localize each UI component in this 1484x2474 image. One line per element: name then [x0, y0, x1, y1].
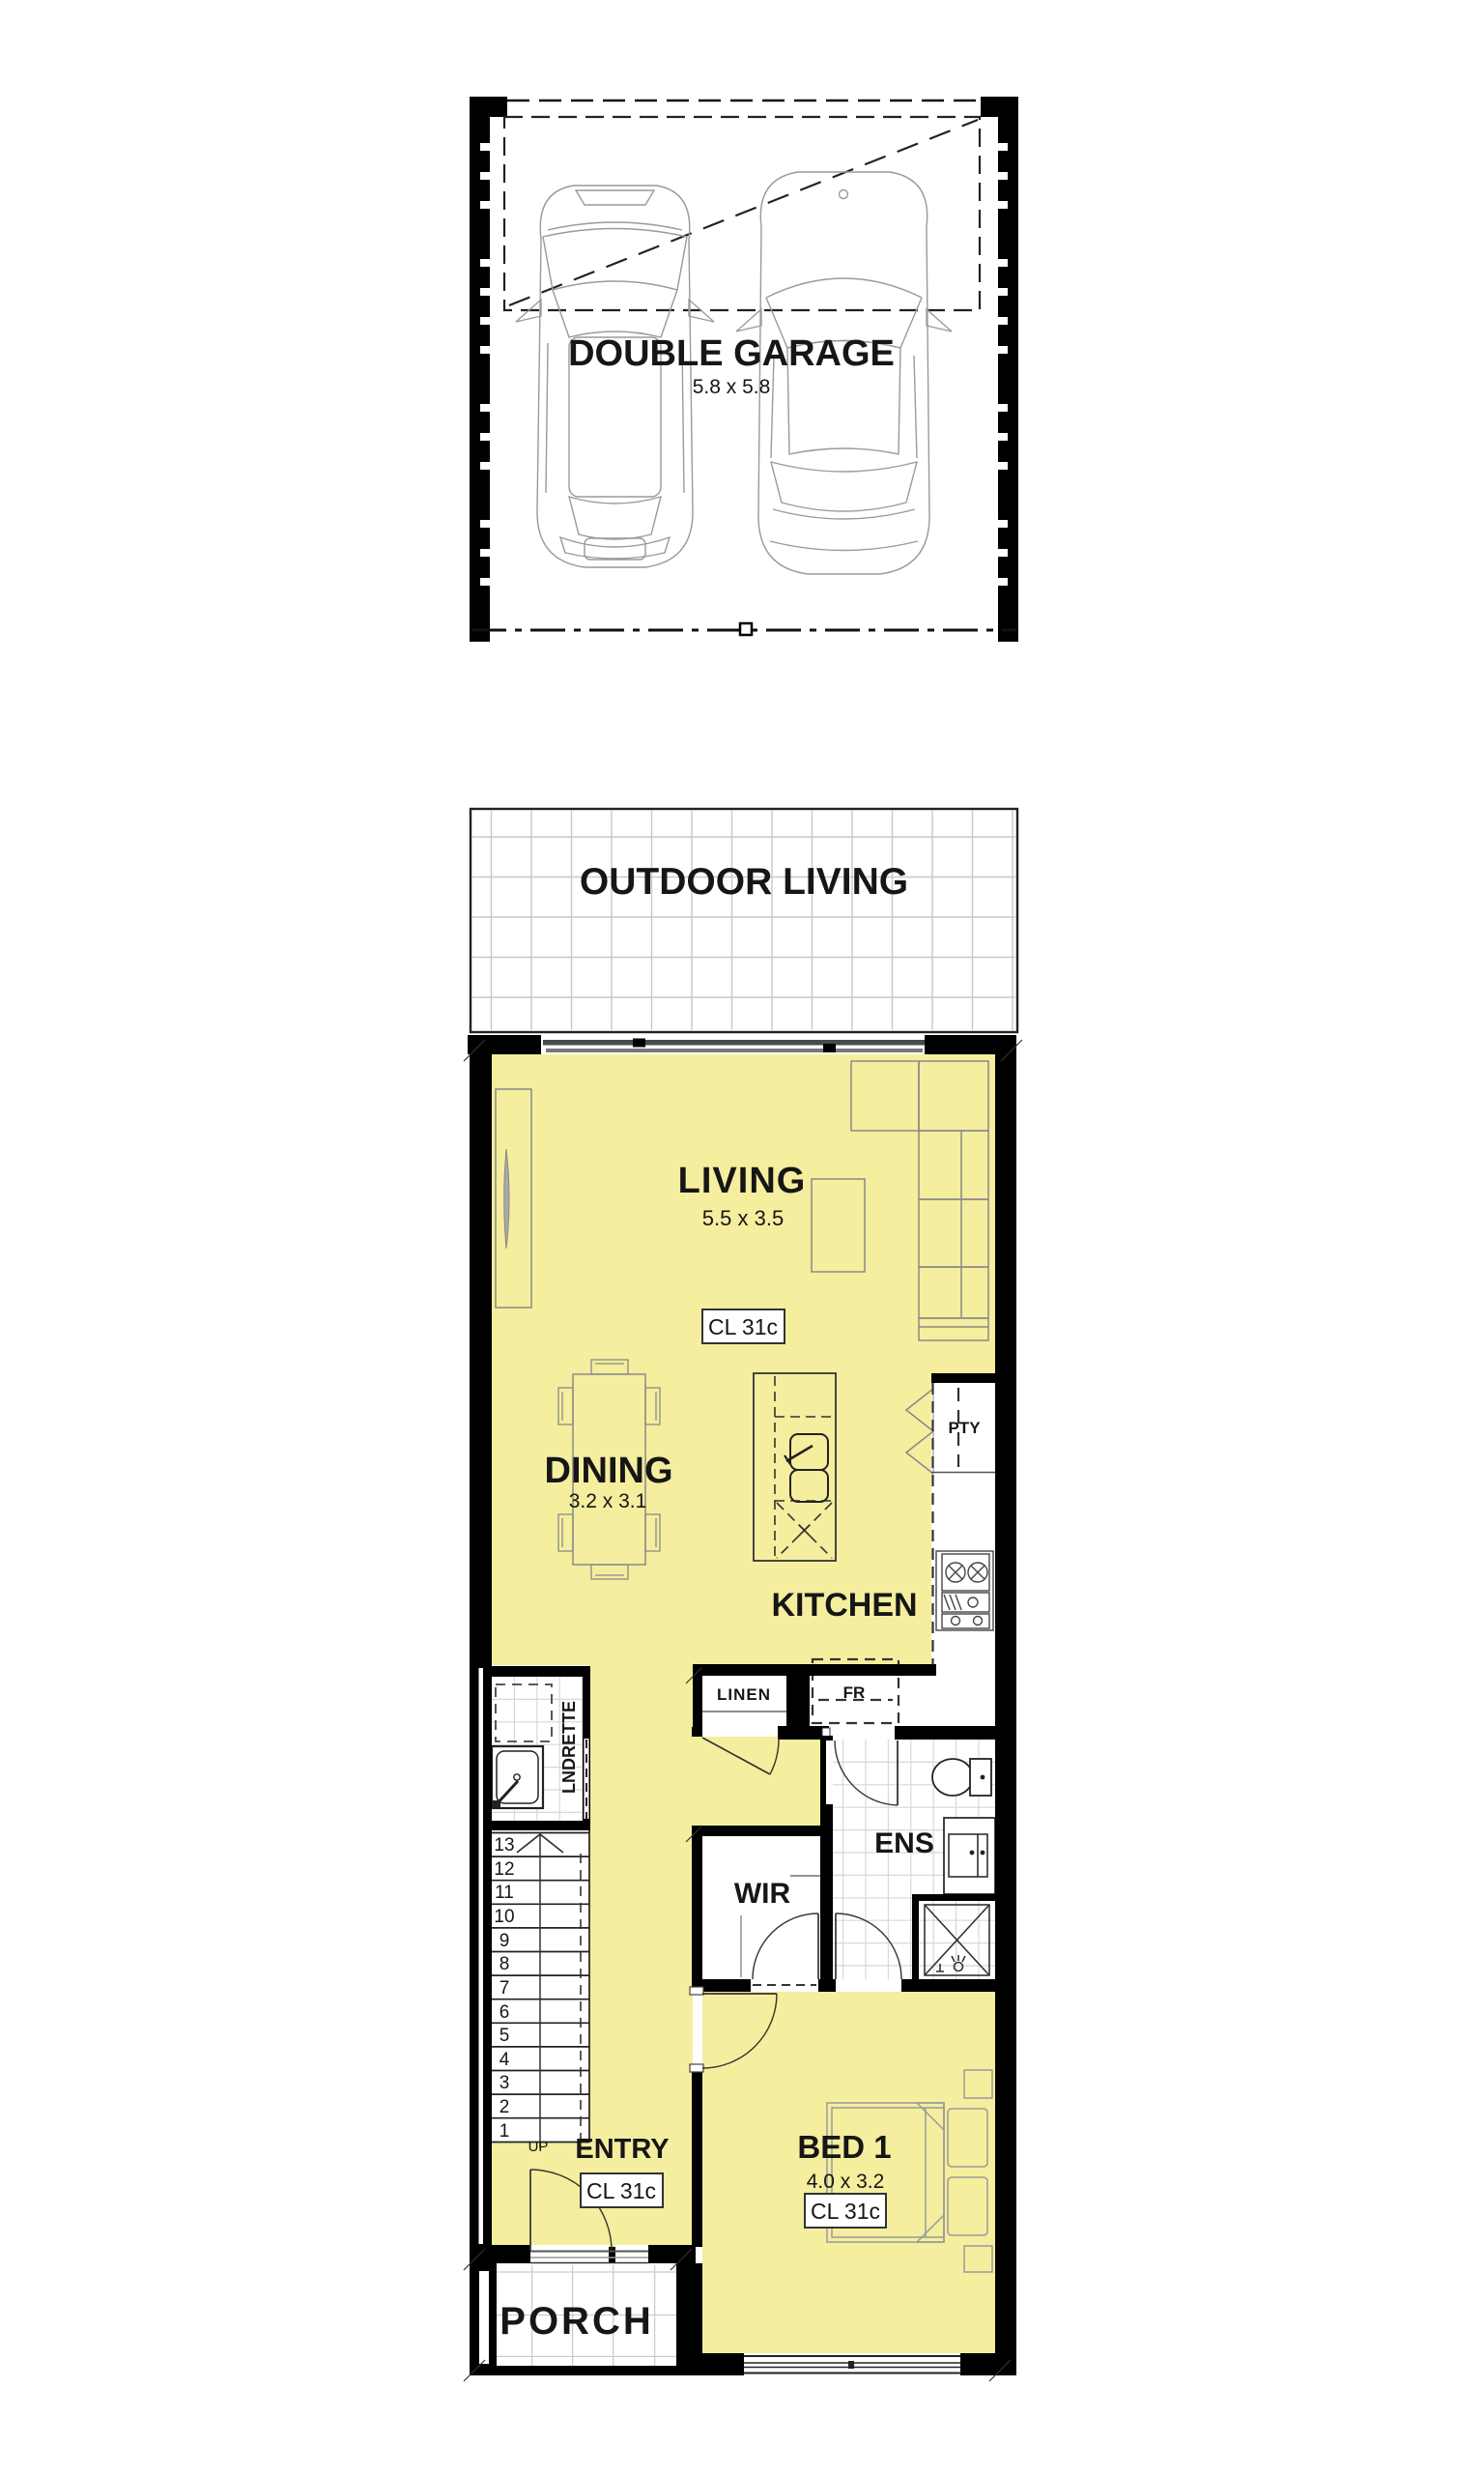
svg-text:CL 31c: CL 31c: [811, 2199, 880, 2224]
svg-text:LINEN: LINEN: [717, 1685, 771, 1704]
svg-text:10: 10: [494, 1907, 514, 1927]
svg-text:3.2 x 3.1: 3.2 x 3.1: [569, 1490, 647, 1512]
svg-text:3: 3: [499, 2073, 510, 2093]
svg-text:LNDRETTE: LNDRETTE: [559, 1701, 579, 1794]
svg-text:12: 12: [494, 1859, 514, 1880]
svg-text:1: 1: [499, 2121, 510, 2142]
svg-text:PTY: PTY: [948, 1419, 981, 1437]
svg-text:7: 7: [499, 1978, 510, 1999]
svg-text:WIR: WIR: [734, 1878, 791, 1910]
svg-text:CL 31c: CL 31c: [708, 1314, 778, 1339]
svg-text:4.0 x 3.2: 4.0 x 3.2: [807, 2171, 885, 2193]
svg-text:BED 1: BED 1: [797, 2129, 891, 2165]
svg-text:5: 5: [499, 2026, 510, 2046]
svg-text:DINING: DINING: [545, 1451, 673, 1491]
svg-text:11: 11: [495, 1883, 514, 1903]
svg-text:CL 31c: CL 31c: [586, 2178, 656, 2203]
svg-text:LIVING: LIVING: [678, 1161, 807, 1201]
svg-text:UP: UP: [528, 2139, 549, 2155]
svg-text:ENS: ENS: [874, 1827, 934, 1859]
svg-text:PORCH: PORCH: [499, 2300, 653, 2343]
svg-text:5.5 x 3.5: 5.5 x 3.5: [702, 1206, 784, 1230]
svg-text:ENTRY: ENTRY: [575, 2134, 669, 2165]
svg-text:FR: FR: [843, 1683, 866, 1702]
svg-text:13: 13: [494, 1835, 514, 1855]
svg-text:4: 4: [499, 2050, 510, 2070]
svg-text:5.8 x 5.8: 5.8 x 5.8: [693, 376, 771, 398]
svg-text:6: 6: [499, 2002, 510, 2023]
svg-text:2: 2: [499, 2097, 510, 2117]
svg-text:8: 8: [499, 1954, 510, 1974]
svg-text:9: 9: [499, 1931, 510, 1951]
svg-text:OUTDOOR LIVING: OUTDOOR LIVING: [580, 861, 908, 903]
svg-text:KITCHEN: KITCHEN: [771, 1587, 917, 1624]
svg-text:DOUBLE GARAGE: DOUBLE GARAGE: [568, 333, 895, 374]
